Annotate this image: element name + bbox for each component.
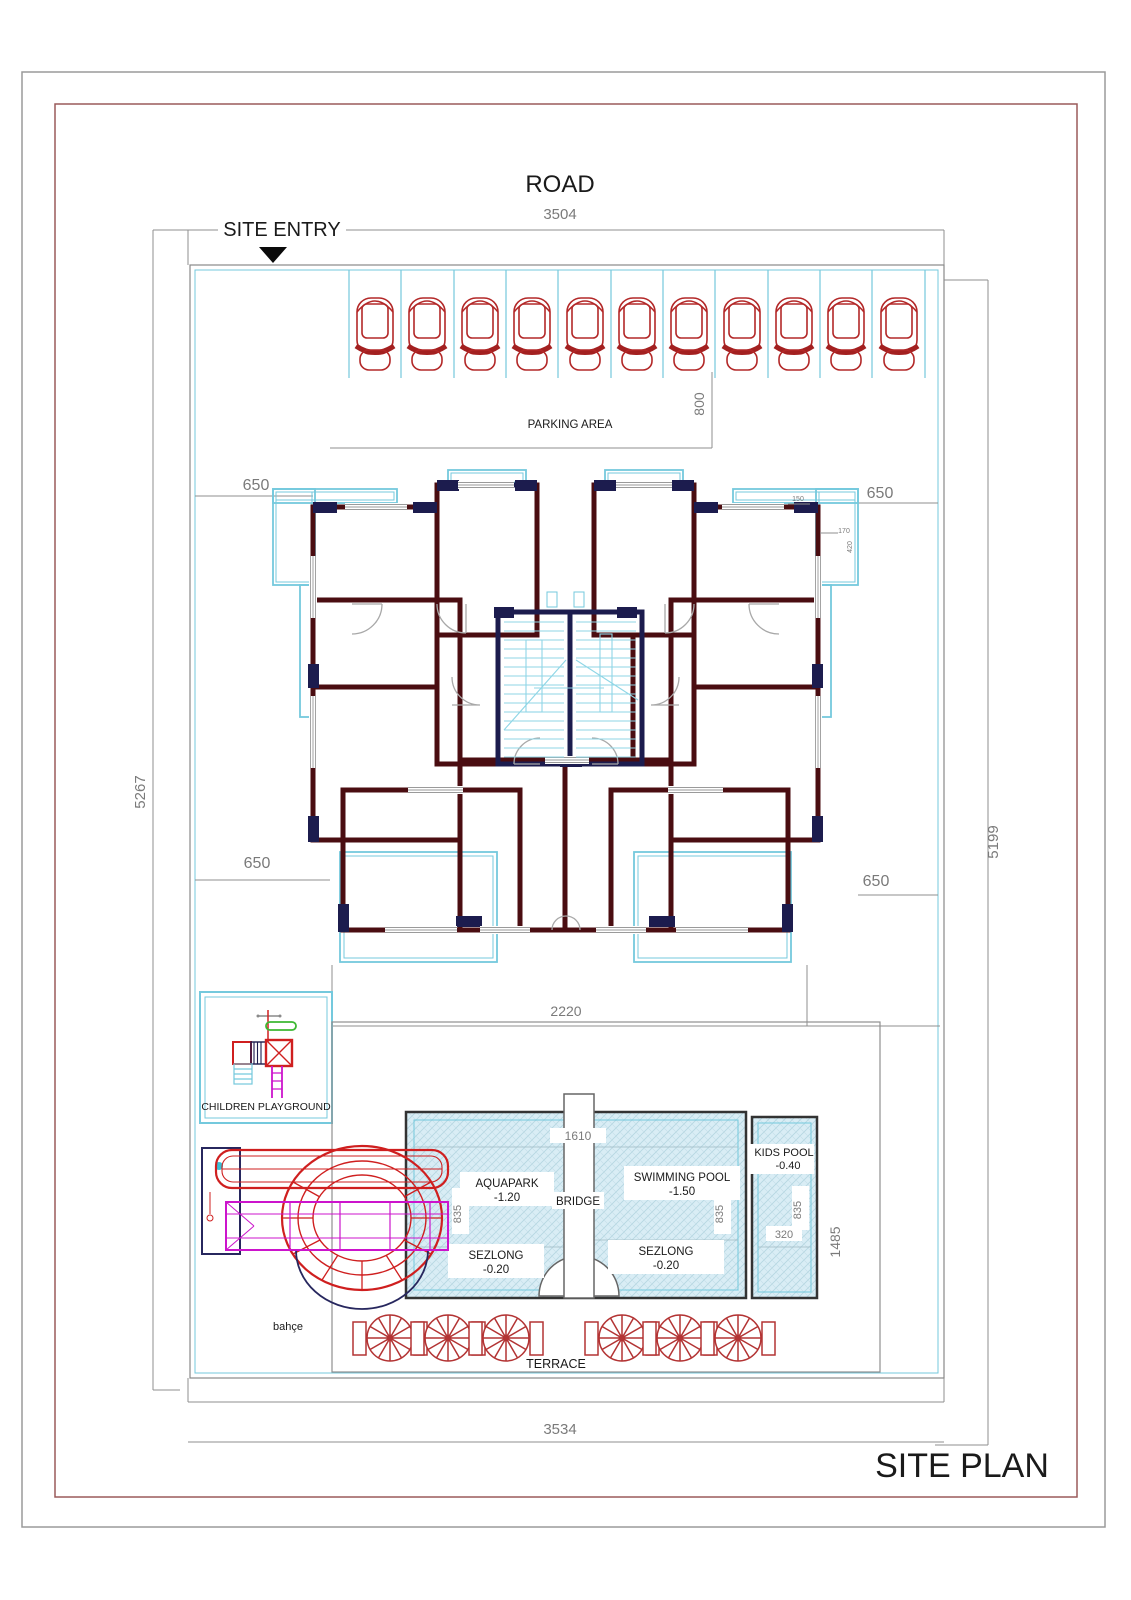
setback-top-right-dim: 650 — [867, 485, 894, 502]
kids-pool-level: -0.40 — [775, 1160, 800, 1172]
aquapark-label: AQUAPARK — [475, 1178, 538, 1190]
balcony-dim-a: 150 — [792, 496, 804, 503]
parking-area: PARKING AREA 800 — [330, 270, 925, 448]
aquapark-level: -1.20 — [494, 1192, 520, 1204]
bridge-length-dim: 1610 — [565, 1129, 592, 1143]
aquapark-width-dim: 835 — [452, 1205, 464, 1223]
walls — [313, 485, 818, 930]
terrace: TERRACE bahçe — [273, 1315, 775, 1371]
bottom-width-dim: 3534 — [543, 1421, 576, 1438]
parked-cars — [356, 298, 918, 370]
bottom-annotations: 3534 SITE PLAN — [188, 1378, 1049, 1485]
sezlong-left-level: -0.20 — [483, 1264, 509, 1276]
pool-height-dim: 1485 — [827, 1226, 843, 1257]
site-entry-label: SITE ENTRY — [223, 219, 340, 241]
road-label: ROAD — [525, 171, 594, 198]
swimming-pool-label: SWIMMING POOL — [634, 1172, 731, 1184]
site-plan-sheet: ROAD 3504 SITE ENTRY PARKING AREA 800 52… — [0, 0, 1131, 1600]
top-annotations: ROAD 3504 SITE ENTRY — [188, 171, 944, 265]
setback-bottom-left-dim: 650 — [244, 855, 271, 872]
kids-pool-width-dim: 835 — [792, 1201, 804, 1219]
playground-equipment-icon — [233, 1010, 296, 1098]
bridge-label: BRIDGE — [556, 1196, 600, 1208]
terrace-label: TERRACE — [526, 1357, 586, 1371]
sezlong-left-label: SEZLONG — [469, 1250, 524, 1262]
left-height-dim: 5267 — [132, 775, 149, 808]
right-height-dim: 5199 — [985, 825, 1002, 858]
parking-area-label: PARKING AREA — [528, 419, 613, 431]
garden-label: bahçe — [273, 1321, 303, 1333]
parking-depth-dim: 800 — [691, 392, 707, 416]
road-width-dim: 3504 — [543, 206, 576, 223]
swimming-pool-level: -1.50 — [669, 1186, 695, 1198]
children-playground: CHILDREN PLAYGROUND — [200, 992, 332, 1123]
pool-area: 1610 AQUAPARK -1.20 BRIDGE SWIMMING POOL… — [202, 1022, 880, 1372]
children-playground-label: CHILDREN PLAYGROUND — [201, 1101, 331, 1113]
sheet-title: SITE PLAN — [875, 1447, 1049, 1485]
building-width-dim: 2220 — [550, 1003, 581, 1019]
swimming-pool-width-dim: 835 — [714, 1205, 726, 1223]
kids-pool-label: KIDS POOL — [754, 1147, 813, 1159]
balcony-dim-c: 420 — [847, 541, 854, 553]
kids-pool-inner-dim: 320 — [775, 1229, 793, 1241]
setback-bottom-right-dim: 650 — [863, 873, 890, 890]
umbrellas — [353, 1315, 775, 1361]
sezlong-right-label: SEZLONG — [639, 1246, 694, 1258]
building-plan: 150 170 420 — [273, 470, 858, 962]
site-plan-drawing: ROAD 3504 SITE ENTRY PARKING AREA 800 52… — [0, 0, 1131, 1600]
setback-top-left-dim: 650 — [243, 477, 270, 494]
site-entry-arrow-icon — [259, 247, 287, 263]
sezlong-right-level: -0.20 — [653, 1260, 679, 1272]
balcony-dim-b: 170 — [838, 528, 850, 535]
